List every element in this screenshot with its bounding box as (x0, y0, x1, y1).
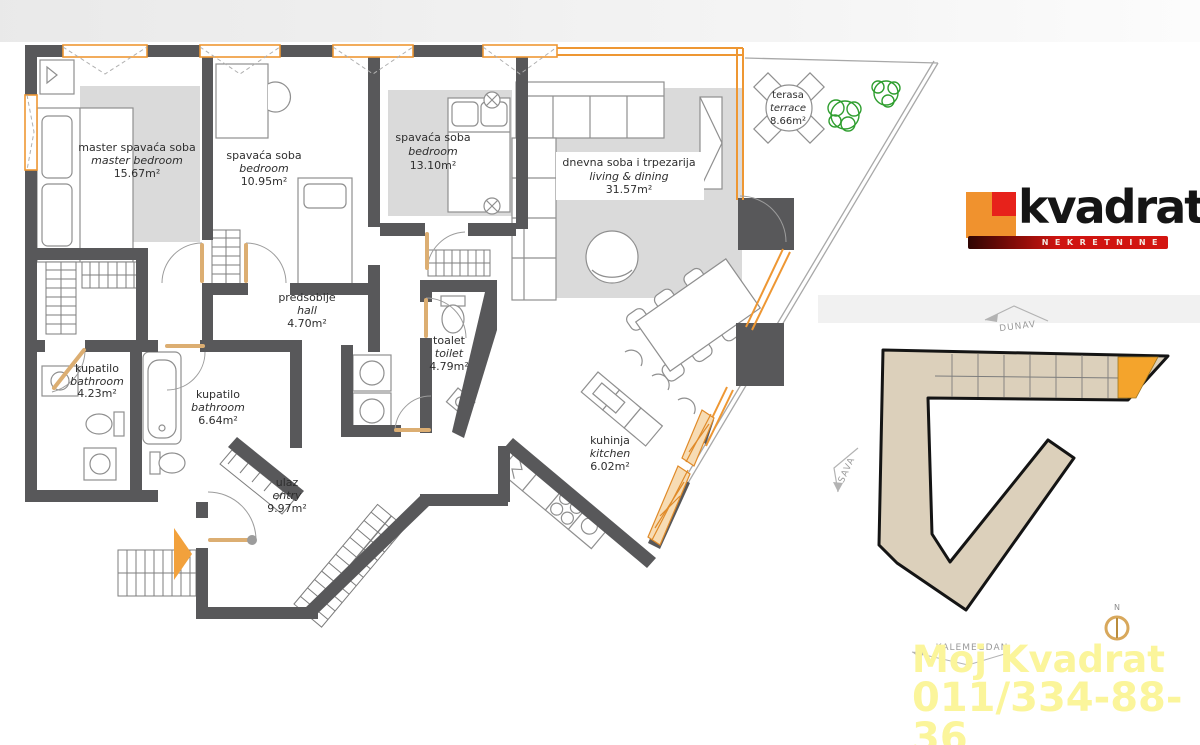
lounge-chair (586, 231, 638, 283)
svg-text:predsoblje: predsoblje (278, 291, 336, 304)
watermark-phone: 011/334-88-36 (912, 678, 1197, 745)
svg-text:kitchen: kitchen (590, 447, 631, 460)
sava-label: SAVA (837, 456, 858, 485)
svg-text:kupatilo: kupatilo (196, 388, 240, 401)
svg-text:entry: entry (272, 489, 302, 502)
svg-text:dnevna soba i trpezarija: dnevna soba i trpezarija (562, 156, 695, 169)
svg-text:kupatilo: kupatilo (75, 362, 119, 375)
svg-text:4.23m²: 4.23m² (77, 387, 117, 400)
svg-text:toalet: toalet (433, 334, 466, 347)
highlighted-unit (1118, 357, 1158, 398)
svg-text:toilet: toilet (435, 347, 464, 360)
logo-tagline-text: NEKRETNINE (1042, 238, 1168, 247)
logo-tagline-bar: NEKRETNINE (968, 236, 1168, 249)
svg-text:13.10m²: 13.10m² (410, 159, 457, 172)
bed-master (37, 108, 133, 262)
wc-toilet (86, 412, 124, 436)
svg-text:terasa: terasa (772, 90, 804, 101)
svg-text:6.02m²: 6.02m² (590, 460, 630, 473)
svg-text:kuhinja: kuhinja (590, 434, 630, 447)
svg-text:bathroom: bathroom (191, 401, 245, 414)
svg-text:spavaća soba: spavaća soba (395, 131, 470, 144)
radiator (428, 250, 490, 276)
svg-text:bedroom: bedroom (408, 145, 457, 158)
svg-text:15.67m²: 15.67m² (114, 167, 161, 180)
floorplan-page: master spavaća soba master bedroom 15.67… (0, 0, 1200, 745)
compass-north-label: N (1114, 603, 1120, 612)
bed-2 (298, 178, 352, 290)
svg-text:31.57m²: 31.57m² (606, 183, 653, 196)
door-knob (247, 535, 257, 545)
svg-text:bedroom: bedroom (239, 162, 288, 175)
kvadrat-logo: kvadrat NEKRETNINE (966, 190, 1176, 252)
nightstand (40, 60, 74, 94)
svg-text:spavaća soba: spavaća soba (226, 149, 301, 162)
svg-text:living & dining: living & dining (589, 170, 668, 183)
wc-toilet (441, 296, 465, 333)
room-label-kitchen: kuhinja kitchen 6.02m² (590, 434, 631, 473)
site-plan: DUNAV SAVA KALEMEGDAN N (833, 306, 1168, 665)
room-label-bathroom-large: kupatilo bathroom 6.64m² (191, 388, 245, 427)
logo-brand-text: kvadrat (1018, 180, 1200, 234)
room-label-toilet: toalet toilet 4.79m² (429, 334, 469, 373)
plant-icon (828, 100, 861, 131)
svg-text:ulaz: ulaz (276, 476, 299, 489)
logo-red-square-icon (992, 192, 1016, 216)
svg-text:6.64m²: 6.64m² (198, 414, 238, 427)
svg-text:master bedroom: master bedroom (91, 154, 183, 167)
svg-text:4.79m²: 4.79m² (429, 360, 469, 373)
room-label-bathroom-small: kupatilo bathroom 4.23m² (70, 362, 124, 400)
radiator (212, 230, 240, 284)
svg-text:8.66m²: 8.66m² (770, 116, 806, 127)
bathtub (143, 352, 181, 444)
svg-text:hall: hall (297, 304, 317, 317)
scan-band-top (0, 0, 1200, 42)
svg-text:10.95m²: 10.95m² (241, 175, 288, 188)
svg-text:terrace: terrace (770, 103, 806, 114)
washer (84, 448, 116, 480)
wc-toilet (150, 452, 185, 474)
watermark-brand: Moj Kvadrat (912, 641, 1197, 678)
svg-text:master spavaća soba: master spavaća soba (78, 141, 195, 154)
watermark: Moj Kvadrat 011/334-88-36 (912, 641, 1197, 745)
room-label-terrace: terasa terrace 8.66m² (770, 90, 806, 127)
svg-text:9.97m²: 9.97m² (267, 502, 307, 515)
svg-text:4.70m²: 4.70m² (287, 317, 327, 330)
plant-icon (872, 81, 900, 107)
compass-icon: N (1106, 603, 1128, 639)
floorplan-canvas: master spavaća soba master bedroom 15.67… (0, 0, 1200, 745)
